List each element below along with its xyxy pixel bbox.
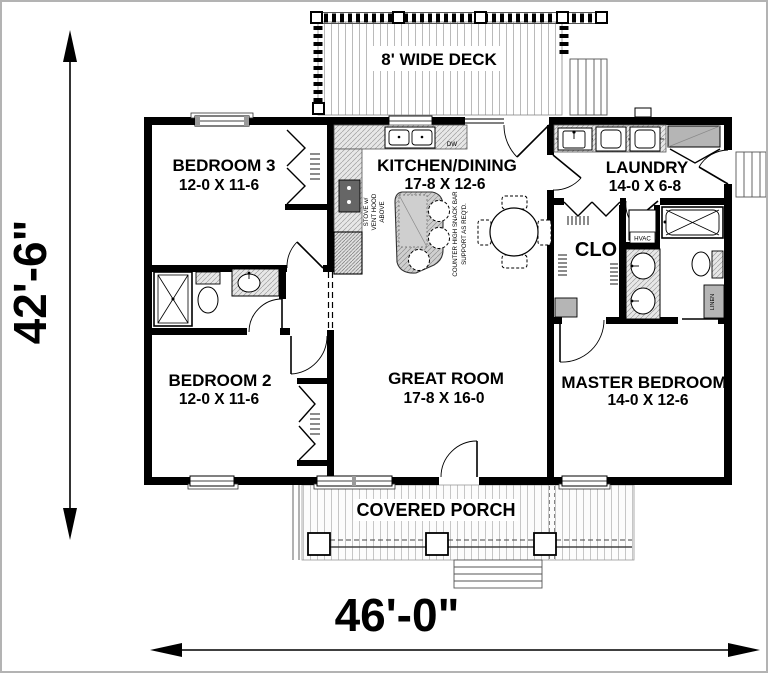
dimension-height: 42'-6": [4, 30, 77, 540]
dining-table: [478, 196, 551, 268]
svg-text:ABOVE: ABOVE: [379, 201, 386, 222]
door-master: [560, 320, 604, 362]
washer: [596, 127, 626, 151]
covered-porch: COVERED PORCH: [293, 485, 634, 588]
stove-note: STOVE w/ VENT HOOD ABOVE: [363, 193, 386, 230]
hvac-closet: HVAC: [629, 210, 656, 243]
deck-steps: [570, 59, 607, 115]
arrow-left-icon: [150, 643, 182, 657]
svg-text:17-8 X 12-6: 17-8 X 12-6: [405, 176, 486, 193]
arrow-up-icon: [63, 30, 77, 62]
svg-text:LAUNDRY: LAUNDRY: [606, 158, 689, 177]
room-bedroom2: BEDROOM 2 12-0 X 11-6: [169, 371, 272, 408]
laundry-vent: [635, 108, 651, 117]
svg-text:17-8 X 16-0: 17-8 X 16-0: [404, 390, 485, 407]
arrow-down-icon: [63, 508, 77, 540]
width-dimension-label: 46'-0": [335, 589, 460, 641]
deck-label: 8' WIDE DECK: [381, 50, 497, 69]
floor-plan-page: 8' WIDE DECK COVERED PORCH: [0, 0, 768, 673]
dryer: [630, 127, 660, 151]
bedroom2-closet: [299, 386, 320, 460]
room-great-room: GREAT ROOM 17-8 X 16-0: [388, 369, 504, 407]
door-deck: [465, 119, 549, 157]
room-bedroom3: BEDROOM 3 12-0 X 11-6: [173, 156, 276, 194]
deck-post: [311, 12, 322, 23]
deck: 8' WIDE DECK: [311, 12, 607, 115]
svg-text:GREAT ROOM: GREAT ROOM: [388, 369, 504, 388]
svg-text:SUPPORT AS REQ'D.: SUPPORT AS REQ'D.: [461, 203, 468, 265]
window-great-room: [314, 476, 395, 489]
porch-post: [308, 533, 330, 555]
hall-vanity: [232, 269, 279, 296]
bedroom3-closet: [287, 130, 320, 204]
bathtub: [662, 207, 723, 238]
dishwasher-label: DW: [447, 141, 457, 148]
room-kitchen: KITCHEN/DINING 17-8 X 12-6: [377, 156, 517, 193]
porch-post: [534, 533, 556, 555]
refrigerator: [334, 232, 362, 274]
deck-post: [596, 12, 607, 23]
svg-text:BEDROOM 2: BEDROOM 2: [169, 371, 272, 390]
double-vanity: [626, 249, 660, 319]
hall-bath-fixtures: [154, 269, 279, 326]
door-clo-bifold: [564, 202, 620, 216]
dimension-width: 46'-0": [150, 589, 760, 657]
cased-opening: [327, 272, 334, 328]
stool: [429, 201, 450, 222]
side-steps: [736, 152, 766, 197]
clo-label: CLO: [575, 239, 617, 261]
stool: [429, 228, 450, 249]
porch-steps: [454, 560, 542, 588]
svg-text:14-0 X 6-8: 14-0 X 6-8: [609, 178, 682, 195]
room-master: MASTER BEDROOM 14-0 X 12-6: [561, 373, 726, 409]
door-bedroom3: [287, 242, 323, 268]
floor-plan-drawing: 8' WIDE DECK COVERED PORCH: [2, 2, 768, 673]
svg-text:12-0 X 11-6: 12-0 X 11-6: [179, 391, 260, 408]
door-laundry: [553, 155, 581, 190]
door-front: [441, 441, 477, 477]
closet-shelf: [555, 298, 577, 317]
porch-post: [426, 533, 448, 555]
kitchen-sink: [385, 127, 435, 148]
window-bedroom3: [191, 113, 253, 126]
svg-text:COUNTER HIGH SNACK BAR: COUNTER HIGH SNACK BAR: [452, 191, 459, 277]
master-toilet: [692, 251, 723, 278]
shower: [154, 272, 192, 326]
kitchen-fixtures: DW STOVE w/ VENT HOOD ABOVE COUNTER HIGH…: [334, 125, 551, 277]
svg-text:BEDROOM 3: BEDROOM 3: [173, 156, 276, 175]
stool: [409, 250, 430, 271]
snack-bar-note: COUNTER HIGH SNACK BAR SUPPORT AS REQ'D.: [452, 191, 468, 277]
arrow-right-icon: [728, 643, 760, 657]
porch-label: COVERED PORCH: [356, 500, 515, 520]
walk-in-closet: CLO: [555, 216, 618, 317]
deck-post: [313, 103, 324, 114]
stove: [339, 180, 360, 212]
porch-floor: [302, 485, 634, 560]
room-laundry: LAUNDRY 14-0 X 6-8: [606, 158, 689, 195]
window-bedroom2: [188, 476, 238, 489]
closet-rod-ticks: [310, 414, 320, 434]
door-bedroom2: [291, 336, 327, 374]
svg-text:STOVE w/: STOVE w/: [363, 197, 370, 226]
svg-text:VENT HOOD: VENT HOOD: [371, 193, 378, 230]
door-side-exterior: [699, 150, 728, 184]
deck-post: [393, 12, 404, 23]
window-master: [559, 476, 610, 489]
svg-text:KITCHEN/DINING: KITCHEN/DINING: [377, 156, 517, 175]
hall-toilet: [196, 272, 220, 313]
deck-post: [557, 12, 568, 23]
deck-post: [475, 12, 486, 23]
closet-rod-ticks: [310, 154, 320, 179]
svg-text:14-0 X 12-6: 14-0 X 12-6: [608, 392, 689, 409]
linen-closet: LINEN: [704, 285, 724, 318]
hvac-label: HVAC: [634, 236, 651, 243]
height-dimension-label: 42'-6": [4, 220, 56, 345]
linen-label: LINEN: [710, 294, 716, 310]
door-bath: [249, 299, 282, 332]
laundry-sink: [558, 128, 592, 150]
window-kitchen: [389, 116, 432, 126]
svg-text:MASTER BEDROOM: MASTER BEDROOM: [561, 373, 726, 392]
svg-text:12-0 X 11-6: 12-0 X 11-6: [179, 177, 260, 194]
